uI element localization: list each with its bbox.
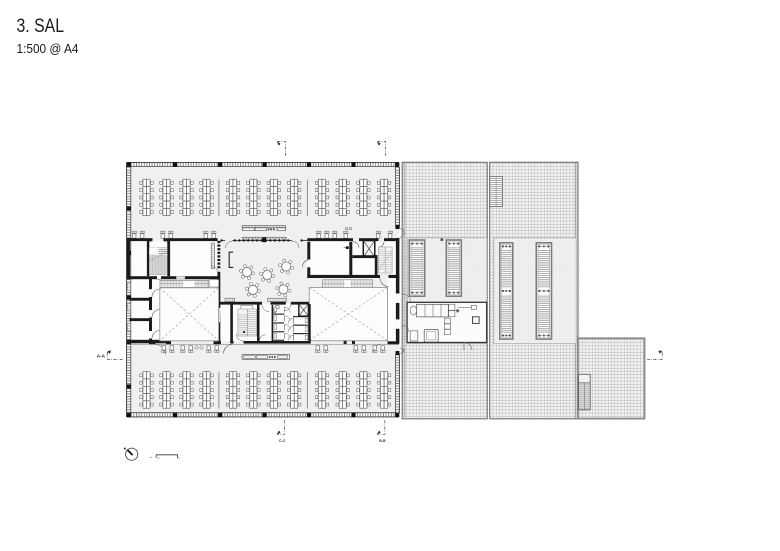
svg-text:B-B: B-B [379,439,386,443]
svg-text:C-C: C-C [279,439,286,443]
svg-text:3. SAL: 3. SAL [17,16,65,37]
svg-text:1:500 @ A4: 1:500 @ A4 [17,41,79,56]
svg-text:A-A: A-A [97,354,106,359]
